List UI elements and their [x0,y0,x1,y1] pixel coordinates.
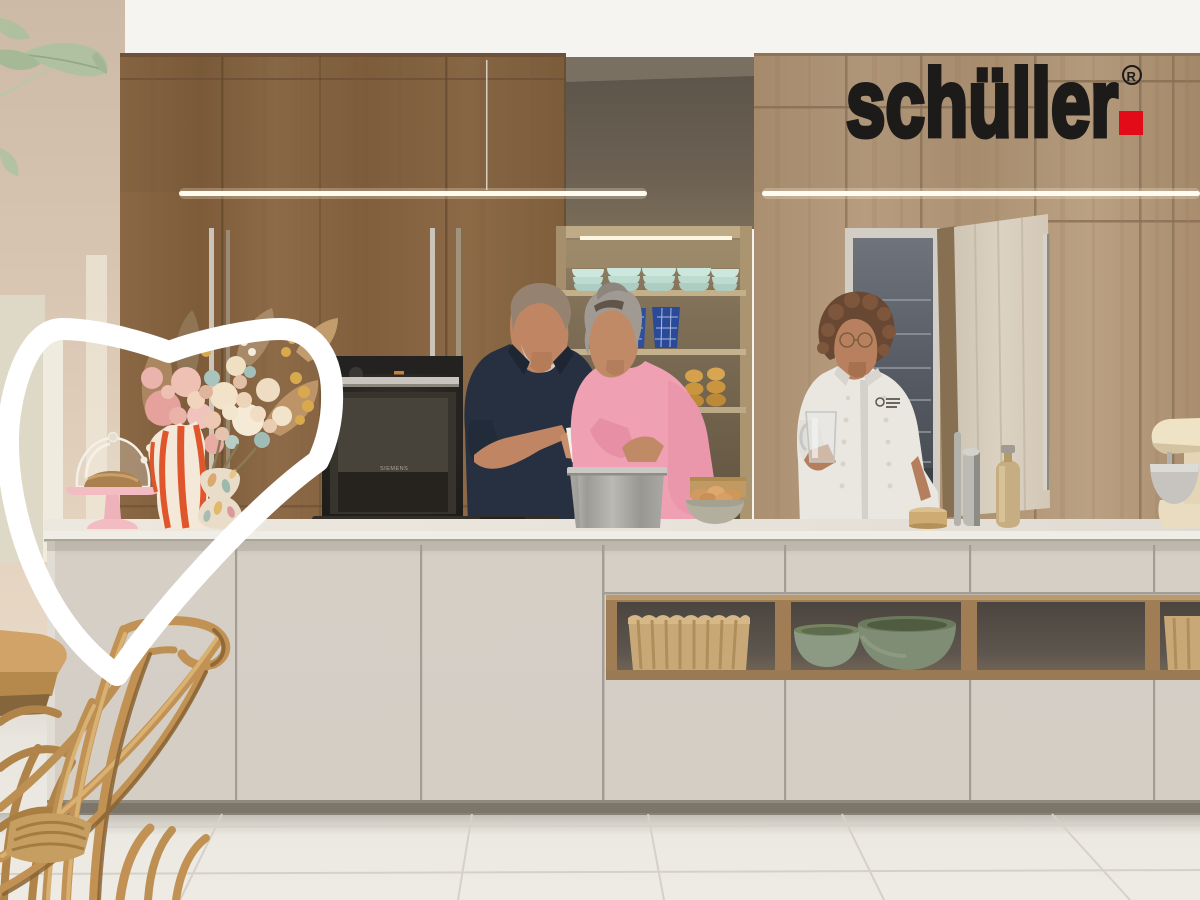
svg-text:R: R [1127,69,1137,84]
svg-text:SIEMENS: SIEMENS [380,466,408,472]
svg-text:schüller: schüller [846,50,1118,157]
